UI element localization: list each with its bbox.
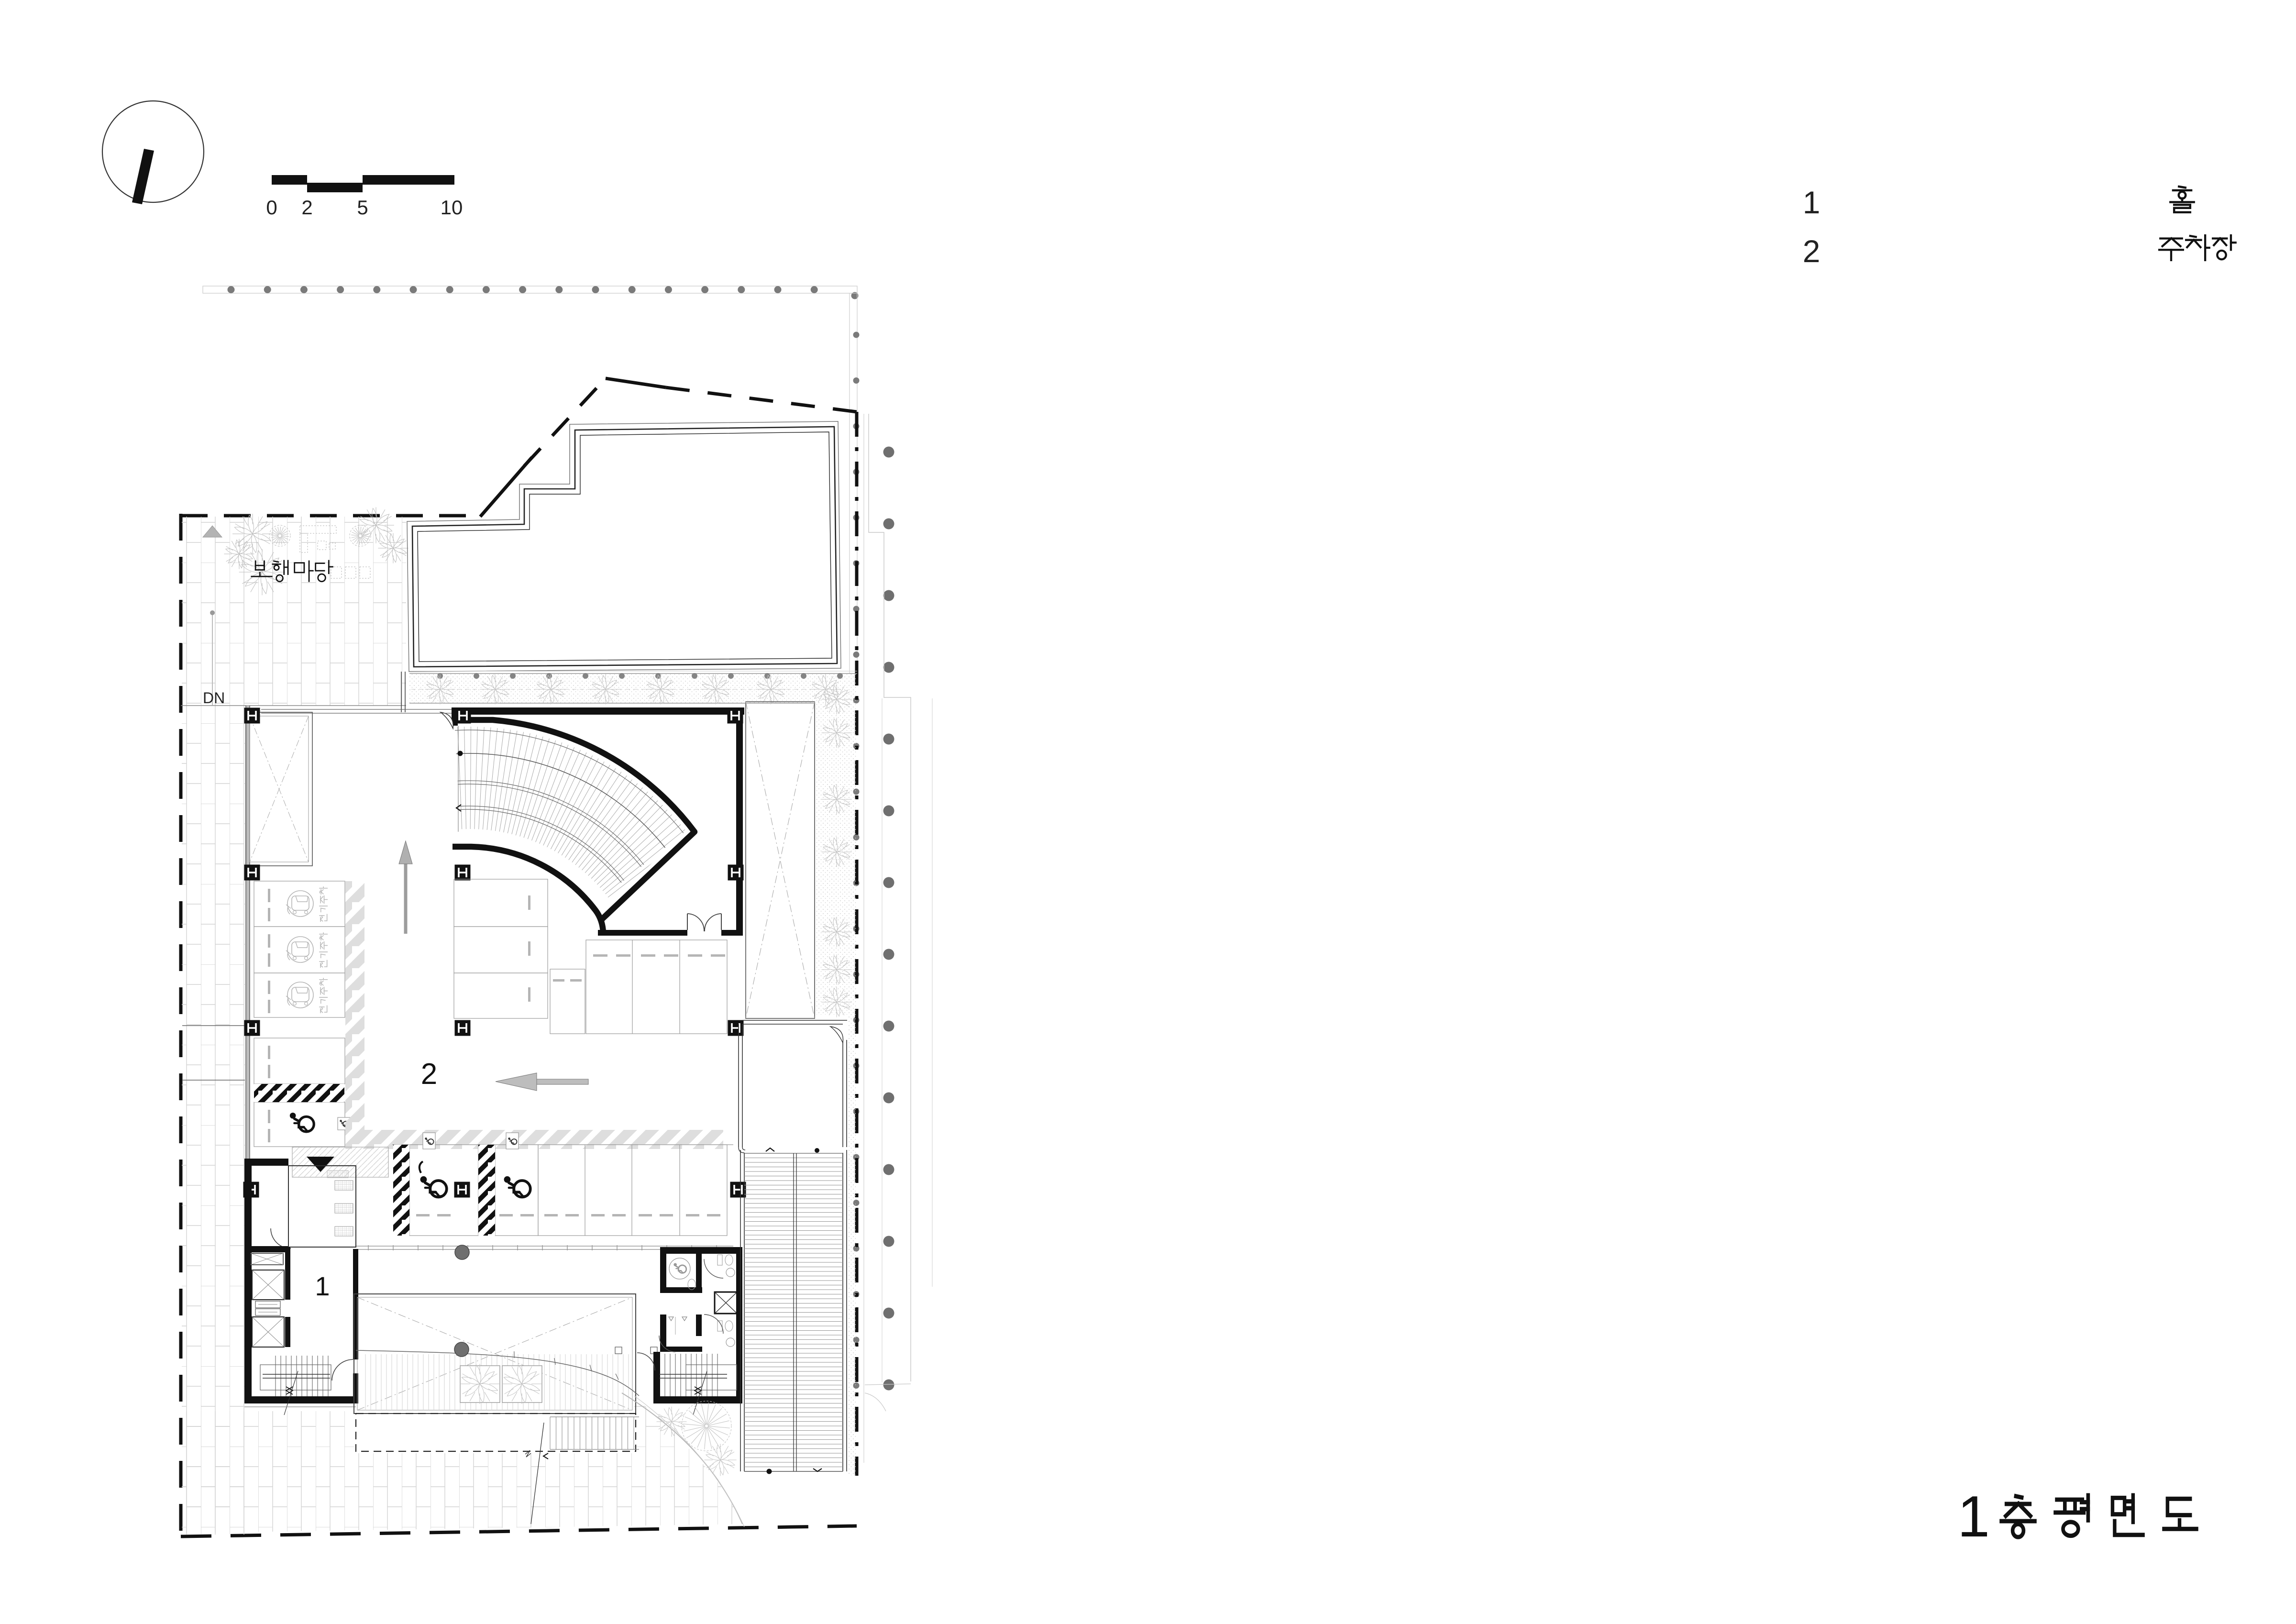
svg-text:1: 1	[1957, 1484, 1990, 1549]
svg-text:DN: DN	[203, 689, 225, 707]
svg-text:2: 2	[301, 196, 312, 219]
svg-text:10: 10	[441, 196, 463, 219]
svg-text:1: 1	[1803, 185, 1821, 220]
svg-text:5: 5	[357, 196, 368, 219]
svg-text:2: 2	[421, 1058, 437, 1091]
svg-text:1: 1	[315, 1271, 330, 1301]
svg-text:2: 2	[1803, 233, 1821, 269]
svg-text:0: 0	[266, 196, 277, 219]
